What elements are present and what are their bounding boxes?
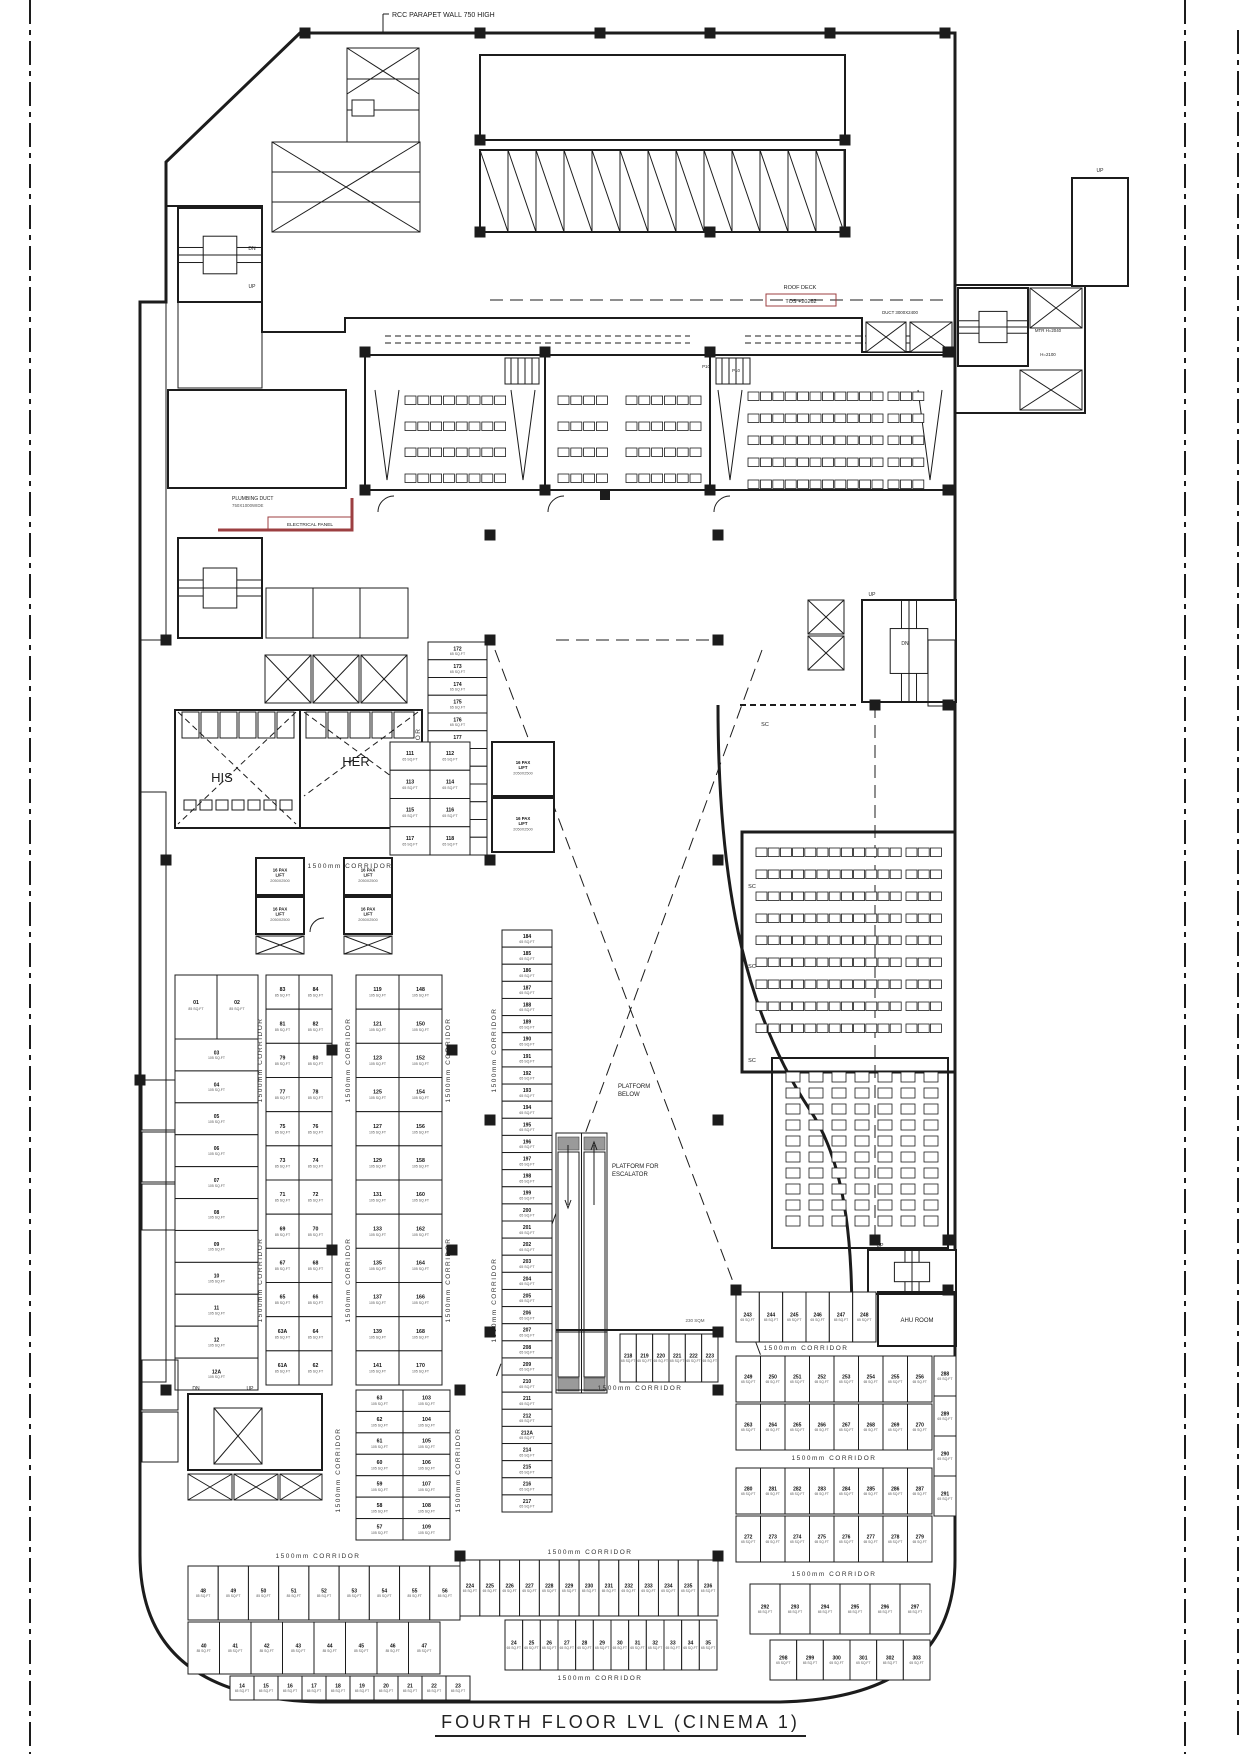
corridor-label: 1500mm CORRIDOR bbox=[598, 1385, 683, 1392]
unit-size: 105 SQ.FT bbox=[418, 1445, 436, 1449]
cinema-seat bbox=[866, 870, 877, 879]
cinema-seat bbox=[805, 892, 816, 901]
cinema-seat bbox=[847, 436, 858, 445]
cinema-seat bbox=[841, 1024, 852, 1033]
ahu-room-label: AHU ROOM bbox=[901, 1318, 934, 1324]
cinema-seat bbox=[639, 396, 650, 405]
cinema-seat bbox=[829, 848, 840, 857]
unit-size: 85 SQ.FT bbox=[438, 1594, 452, 1598]
cinema-seat bbox=[558, 396, 569, 405]
cinema-seat bbox=[626, 396, 637, 405]
unit-size: 85 SQ.FT bbox=[308, 1335, 324, 1339]
unit-size: 65 SQ.FT bbox=[355, 1689, 369, 1693]
cinema-seat bbox=[768, 848, 779, 857]
cinema-seat bbox=[584, 474, 595, 483]
unit-size: 65 SQ.FT bbox=[427, 1689, 441, 1693]
cinema-seat bbox=[900, 414, 911, 423]
cinema-seat bbox=[890, 870, 901, 879]
unit-size: 105 SQ.FT bbox=[369, 1267, 387, 1271]
cinema-seat bbox=[786, 1200, 800, 1210]
column bbox=[943, 700, 954, 711]
cinema-seat bbox=[558, 422, 569, 431]
roof-chevron bbox=[480, 55, 845, 140]
toilet-stall bbox=[350, 712, 370, 738]
cinema-seat bbox=[798, 392, 809, 401]
cinema-seat bbox=[901, 1072, 915, 1082]
cinema-seat bbox=[832, 1072, 846, 1082]
unit-number: 123 bbox=[373, 1055, 382, 1061]
unit-size: 65 SQ.FT bbox=[937, 1417, 953, 1421]
platform-escalator-label: ESCALATOR bbox=[612, 1172, 648, 1178]
cinema-seat bbox=[822, 436, 833, 445]
sheet-title: FOURTH FLOOR LVL (CINEMA 1) bbox=[0, 1712, 1241, 1733]
cinema-seat bbox=[855, 1200, 869, 1210]
unit-number: 115 bbox=[406, 808, 414, 814]
sc-label: SC bbox=[748, 884, 756, 890]
unit-size: 65 SQ.FT bbox=[686, 1359, 700, 1363]
unit-size: 105 SQ.FT bbox=[412, 1130, 430, 1134]
unit-size: 65 SQ.FT bbox=[560, 1646, 574, 1650]
cinema-seat bbox=[768, 892, 779, 901]
sheet-title-text: FOURTH FLOOR LVL (CINEMA 1) bbox=[435, 1712, 806, 1737]
plan-label: 85 SQ.FT bbox=[229, 1007, 245, 1011]
cinema-seat bbox=[913, 458, 924, 467]
unit-number: 156 bbox=[416, 1124, 425, 1130]
unit-number: 118 bbox=[446, 836, 454, 842]
cinema-seat bbox=[639, 448, 650, 457]
cinema-seat bbox=[930, 870, 941, 879]
unit-number: 162 bbox=[416, 1226, 425, 1232]
unit-size: 65 SQ.FT bbox=[519, 1333, 535, 1337]
unit-size: 65 SQ.FT bbox=[519, 1008, 535, 1012]
platform-escalator-label: PLATFORM FOR bbox=[612, 1164, 659, 1170]
unit-size: 85 SQ.FT bbox=[323, 1649, 337, 1653]
cinema-seat bbox=[918, 1024, 929, 1033]
cinema-seat bbox=[866, 1024, 877, 1033]
unit-number: 71 bbox=[280, 1192, 286, 1198]
plan-label: 2050X2500 bbox=[513, 828, 532, 832]
cinema-seat bbox=[456, 448, 467, 457]
column bbox=[360, 347, 371, 358]
unit-number: 109 bbox=[422, 1524, 431, 1530]
unit-number: 79 bbox=[280, 1055, 286, 1061]
unit-size: 65 SQ.FT bbox=[937, 1377, 953, 1381]
corridor-label: 1500mm CORRIDOR bbox=[491, 1008, 498, 1093]
door-arc bbox=[714, 496, 730, 512]
unit-size: 65 SQ.FT bbox=[582, 1589, 596, 1593]
cinema-seat bbox=[805, 870, 816, 879]
cinema-seat bbox=[596, 422, 607, 431]
cinema-seat bbox=[690, 474, 701, 483]
unit-size: 65 SQ.FT bbox=[442, 758, 458, 762]
unit-size: 65 SQ.FT bbox=[913, 1492, 927, 1496]
unit-number: 62 bbox=[377, 1417, 383, 1423]
cinema-seat bbox=[854, 870, 865, 879]
unit-size: 65 SQ.FT bbox=[463, 1589, 477, 1593]
unit-size: 65 SQ.FT bbox=[776, 1661, 790, 1665]
unit-number: 69 bbox=[280, 1226, 286, 1232]
unit-size: 85 SQ.FT bbox=[308, 1199, 324, 1203]
unit-size: 65 SQ.FT bbox=[661, 1589, 675, 1593]
unit-size: 65 SQ.FT bbox=[701, 1646, 715, 1650]
platform-below-label: PLATFORM bbox=[618, 1084, 650, 1090]
unit-size: 85 SQ.FT bbox=[275, 1369, 291, 1373]
cinema-seat bbox=[841, 848, 852, 857]
cinema-seat bbox=[832, 1120, 846, 1130]
unit-size: 65 SQ.FT bbox=[788, 1610, 802, 1614]
unit-size: 105 SQ.FT bbox=[412, 1301, 430, 1305]
unit-size: 105 SQ.FT bbox=[371, 1467, 389, 1471]
unit-size: 65 SQ.FT bbox=[937, 1497, 953, 1501]
cinema-seat bbox=[888, 436, 899, 445]
unit-number: 166 bbox=[416, 1295, 425, 1301]
unit-number: 68 bbox=[313, 1260, 319, 1266]
unit-size: 105 SQ.FT bbox=[208, 1375, 226, 1379]
unit-size: 105 SQ.FT bbox=[371, 1531, 389, 1535]
cinema-seat bbox=[664, 422, 675, 431]
unit-size: 85 SQ.FT bbox=[417, 1649, 431, 1653]
cinema-seat bbox=[690, 422, 701, 431]
cinema-seat bbox=[760, 414, 771, 423]
unit-size: 65 SQ.FT bbox=[519, 1402, 535, 1406]
cinema-seat bbox=[786, 1216, 800, 1226]
column bbox=[540, 347, 551, 358]
toilet-basin bbox=[200, 800, 212, 810]
cinema-seat bbox=[855, 1184, 869, 1194]
unit-size: 65 SQ.FT bbox=[888, 1380, 902, 1384]
cinema-seat bbox=[924, 1152, 938, 1162]
toilet-stall bbox=[220, 712, 237, 738]
unit-number: 82 bbox=[313, 1021, 319, 1027]
unit-number: 73 bbox=[280, 1158, 286, 1164]
unit-number: 107 bbox=[422, 1481, 431, 1487]
unit-size: 105 SQ.FT bbox=[418, 1424, 436, 1428]
unit-size: 65 SQ.FT bbox=[741, 1492, 755, 1496]
cinema-seat bbox=[798, 458, 809, 467]
cinema-seat bbox=[809, 1152, 823, 1162]
cinema-seat bbox=[817, 1024, 828, 1033]
unit-number: 164 bbox=[416, 1260, 425, 1266]
unit-size: 65 SQ.FT bbox=[519, 1299, 535, 1303]
unit-size: 65 SQ.FT bbox=[878, 1610, 892, 1614]
cinema-seat bbox=[768, 1002, 779, 1011]
unit-size: 65 SQ.FT bbox=[790, 1492, 804, 1496]
cinema-seat bbox=[809, 1168, 823, 1178]
unit-size: 105 SQ.FT bbox=[208, 1056, 226, 1060]
unit-size: 105 SQ.FT bbox=[371, 1488, 389, 1492]
cinema-seat bbox=[760, 458, 771, 467]
cinema-seat bbox=[918, 936, 929, 945]
cinema-seat bbox=[872, 458, 883, 467]
cinema-seat bbox=[854, 936, 865, 945]
plan-label: LIFT bbox=[363, 912, 372, 917]
unit-size: 65 SQ.FT bbox=[519, 1231, 535, 1235]
plan-label: LIFT bbox=[275, 912, 284, 917]
unit-size: 65 SQ.FT bbox=[839, 1380, 853, 1384]
unit-size: 105 SQ.FT bbox=[208, 1280, 226, 1284]
cinema-seat bbox=[854, 914, 865, 923]
cinema-seat bbox=[805, 936, 816, 945]
cinema-seat bbox=[829, 1024, 840, 1033]
cinema-seat bbox=[809, 1200, 823, 1210]
unit-size: 65 SQ.FT bbox=[542, 1646, 556, 1650]
plan-label: 2050X2500 bbox=[358, 879, 377, 883]
unit-size: 85 SQ.FT bbox=[386, 1649, 400, 1653]
unit-size: 105 SQ.FT bbox=[418, 1531, 436, 1535]
cinema-seat bbox=[760, 392, 771, 401]
unit-size: 105 SQ.FT bbox=[208, 1088, 226, 1092]
plan-label: LIFT bbox=[518, 765, 527, 770]
cinema-seat bbox=[855, 1152, 869, 1162]
unit-size: 65 SQ.FT bbox=[442, 814, 458, 818]
unit-number: 131 bbox=[373, 1192, 382, 1198]
unit-size: 105 SQ.FT bbox=[208, 1248, 226, 1252]
cinema-seat bbox=[854, 1024, 865, 1033]
cinema-seat bbox=[756, 936, 767, 945]
cinema-seat bbox=[785, 480, 796, 489]
cinema-seat bbox=[786, 1168, 800, 1178]
cinema-seat bbox=[690, 448, 701, 457]
up-label: UP bbox=[249, 284, 257, 290]
unit-size: 65 SQ.FT bbox=[519, 1453, 535, 1457]
cinema-seat bbox=[469, 396, 480, 405]
unit-size: 85 SQ.FT bbox=[275, 1130, 291, 1134]
cinema-seat bbox=[832, 1200, 846, 1210]
unit-size: 65 SQ.FT bbox=[910, 1661, 924, 1665]
cinema-seat bbox=[860, 480, 871, 489]
unit-size: 65 SQ.FT bbox=[839, 1540, 853, 1544]
cinema-seat bbox=[835, 392, 846, 401]
unit-number: 66 bbox=[313, 1295, 319, 1301]
cinema-seat bbox=[924, 1088, 938, 1098]
cinema-seat bbox=[918, 980, 929, 989]
unit-size: 65 SQ.FT bbox=[519, 1470, 535, 1474]
unit-size: 105 SQ.FT bbox=[369, 1301, 387, 1305]
unit-size: 65 SQ.FT bbox=[741, 1318, 755, 1322]
cinema-seat bbox=[773, 392, 784, 401]
unit-size: 65 SQ.FT bbox=[519, 1060, 535, 1064]
cinema-seat bbox=[822, 392, 833, 401]
unit-size: 105 SQ.FT bbox=[208, 1343, 226, 1347]
platform-below-label: BELOW bbox=[618, 1092, 640, 1098]
unit-size: 105 SQ.FT bbox=[371, 1424, 389, 1428]
plan-label: 2050X2500 bbox=[270, 918, 289, 922]
column bbox=[713, 1551, 724, 1562]
unit-size: 105 SQ.FT bbox=[369, 1369, 387, 1373]
cinema-seat bbox=[906, 892, 917, 901]
unit-number: 58 bbox=[377, 1503, 383, 1509]
unit-size: 65 SQ.FT bbox=[519, 1042, 535, 1046]
unit-size: 65 SQ.FT bbox=[522, 1589, 536, 1593]
speaker-wedge bbox=[718, 390, 742, 480]
column bbox=[713, 1385, 724, 1396]
cinema-seat bbox=[756, 980, 767, 989]
unit-size: 65 SQ.FT bbox=[803, 1661, 817, 1665]
unit-number: 02 bbox=[234, 1000, 240, 1006]
unit-size: 65 SQ.FT bbox=[519, 1128, 535, 1132]
cinema-seat bbox=[906, 870, 917, 879]
cinema-seat bbox=[918, 870, 929, 879]
unit-size: 65 SQ.FT bbox=[450, 723, 466, 727]
unit-size: 65 SQ.FT bbox=[856, 1661, 870, 1665]
cinema-seat bbox=[469, 448, 480, 457]
cinema-seat bbox=[900, 458, 911, 467]
unit-size: 105 SQ.FT bbox=[371, 1402, 389, 1406]
unit-number: 75 bbox=[280, 1124, 286, 1130]
unit-size: 85 SQ.FT bbox=[275, 1233, 291, 1237]
column bbox=[161, 855, 172, 866]
cinema-seat bbox=[780, 914, 791, 923]
cinema-seat bbox=[773, 436, 784, 445]
unit-number: 59 bbox=[377, 1481, 383, 1487]
unit-number: 137 bbox=[373, 1295, 382, 1301]
cinema-seat bbox=[817, 848, 828, 857]
unit-number: 78 bbox=[313, 1090, 319, 1096]
unit-size: 65 SQ.FT bbox=[403, 1689, 417, 1693]
unit-number: 77 bbox=[280, 1090, 286, 1096]
cinema-seat bbox=[456, 422, 467, 431]
unit-size: 105 SQ.FT bbox=[369, 1062, 387, 1066]
unit-size: 65 SQ.FT bbox=[502, 1589, 516, 1593]
unit-size: 65 SQ.FT bbox=[622, 1589, 636, 1593]
cinema-seat bbox=[829, 870, 840, 879]
cinema-seat bbox=[482, 474, 493, 483]
unit-size: 65 SQ.FT bbox=[766, 1540, 780, 1544]
unit-number: 158 bbox=[416, 1158, 425, 1164]
cinema-seat bbox=[878, 870, 889, 879]
cinema-seat bbox=[443, 396, 454, 405]
unit-size: 65 SQ.FT bbox=[379, 1689, 393, 1693]
unit-number: 106 bbox=[422, 1460, 431, 1466]
unit-size: 105 SQ.FT bbox=[412, 1369, 430, 1373]
cinema-seat bbox=[780, 1024, 791, 1033]
cinema-seat bbox=[405, 396, 416, 405]
cinema-seat bbox=[495, 422, 506, 431]
unit-size: 65 SQ.FT bbox=[331, 1689, 345, 1693]
cinema-seat bbox=[878, 1200, 892, 1210]
cinema-seat bbox=[443, 422, 454, 431]
cinema-seat bbox=[841, 870, 852, 879]
unit-size: 105 SQ.FT bbox=[369, 1096, 387, 1100]
cinema-seat bbox=[841, 1002, 852, 1011]
roof-tos-label: TOS +20262 bbox=[785, 299, 816, 305]
cinema-seat bbox=[872, 392, 883, 401]
toilet-stall bbox=[239, 712, 256, 738]
unit-number: 57 bbox=[377, 1524, 383, 1530]
toilet-basin bbox=[264, 800, 276, 810]
cinema-seat bbox=[890, 892, 901, 901]
cinema-seat bbox=[817, 980, 828, 989]
unit-size: 85 SQ.FT bbox=[308, 1233, 324, 1237]
p10-tag: P10 bbox=[732, 368, 740, 373]
unit-size: 105 SQ.FT bbox=[369, 1130, 387, 1134]
unit-size: 65 SQ.FT bbox=[790, 1380, 804, 1384]
cinema-seat bbox=[841, 958, 852, 967]
cinema-seat bbox=[571, 396, 582, 405]
floorplan-svg: RCC PARAPET WALL 750 HIGHROOF DECKTOS +2… bbox=[0, 0, 1241, 1754]
unit-size: 65 SQ.FT bbox=[758, 1610, 772, 1614]
cinema-seat bbox=[832, 1184, 846, 1194]
cinema-seat bbox=[918, 848, 929, 857]
column bbox=[540, 485, 551, 496]
unit-size: 65 SQ.FT bbox=[259, 1689, 273, 1693]
cinema-seat bbox=[793, 892, 804, 901]
cinema-seat bbox=[785, 414, 796, 423]
toilet-stall bbox=[328, 712, 348, 738]
roof-deck-label: ROOF DECK bbox=[784, 285, 817, 291]
unit-size: 65 SQ.FT bbox=[235, 1689, 249, 1693]
cinema-seat bbox=[847, 458, 858, 467]
column bbox=[485, 530, 496, 541]
cinema-seat bbox=[418, 422, 429, 431]
cinema-seat bbox=[878, 980, 889, 989]
unit-size: 85 SQ.FT bbox=[226, 1594, 240, 1598]
cinema-seat bbox=[786, 1088, 800, 1098]
unit-size: 65 SQ.FT bbox=[741, 1540, 755, 1544]
column bbox=[485, 635, 496, 646]
column bbox=[475, 227, 486, 238]
unit-number: 139 bbox=[373, 1329, 382, 1335]
cinema-seat bbox=[913, 436, 924, 445]
cinema-seat bbox=[930, 958, 941, 967]
unit-size: 85 SQ.FT bbox=[308, 1164, 324, 1168]
cinema-seat bbox=[780, 958, 791, 967]
duct-label: DUCT 3000X2400 bbox=[882, 310, 918, 315]
column bbox=[447, 1045, 458, 1056]
cinema-seat bbox=[855, 1120, 869, 1130]
toilet-stall bbox=[201, 712, 218, 738]
unit-size: 85 SQ.FT bbox=[275, 1335, 291, 1339]
unit-number: 64 bbox=[313, 1329, 319, 1335]
plumbing-label: PLUMBING DUCT bbox=[232, 496, 273, 502]
cinema-seat bbox=[872, 480, 883, 489]
corridor-label: 1500mm CORRIDOR bbox=[792, 1571, 877, 1578]
cinema-seat bbox=[469, 422, 480, 431]
cinema-seat bbox=[835, 436, 846, 445]
door-arc bbox=[378, 496, 394, 512]
unit-size: 105 SQ.FT bbox=[418, 1488, 436, 1492]
unit-size: 85 SQ.FT bbox=[287, 1594, 301, 1598]
unit-size: 65 SQ.FT bbox=[741, 1380, 755, 1384]
unit-size: 85 SQ.FT bbox=[308, 1062, 324, 1066]
cinema-seat bbox=[901, 1088, 915, 1098]
unit-number: 61A bbox=[278, 1363, 288, 1369]
cinema-seat bbox=[878, 1136, 892, 1146]
cinema-seat bbox=[431, 474, 442, 483]
cinema-seat bbox=[866, 1002, 877, 1011]
unit-size: 65 SQ.FT bbox=[507, 1646, 521, 1650]
unit-number: 70 bbox=[313, 1226, 319, 1232]
cinema-seat bbox=[639, 474, 650, 483]
plan-label: 85 SQ.FT bbox=[188, 1007, 204, 1011]
column bbox=[713, 1327, 724, 1338]
sqm-label: 230 SQM bbox=[685, 1318, 704, 1323]
cinema-seat bbox=[817, 1002, 828, 1011]
cinema-seat bbox=[860, 436, 871, 445]
mtr-label: MTR H=2040 bbox=[1035, 328, 1062, 333]
cinema-seat bbox=[809, 1120, 823, 1130]
cinema-seat bbox=[924, 1184, 938, 1194]
corridor-label: 1500mm CORRIDOR bbox=[548, 1549, 633, 1556]
corridor-label: 1500mm CORRIDOR bbox=[335, 1428, 342, 1513]
cinema-seat bbox=[773, 414, 784, 423]
column bbox=[485, 1327, 496, 1338]
unit-size: 65 SQ.FT bbox=[442, 786, 458, 790]
unit-size: 85 SQ.FT bbox=[275, 1062, 291, 1066]
column bbox=[327, 1245, 338, 1256]
unit-size: 65 SQ.FT bbox=[857, 1318, 871, 1322]
cinema-seat bbox=[805, 848, 816, 857]
